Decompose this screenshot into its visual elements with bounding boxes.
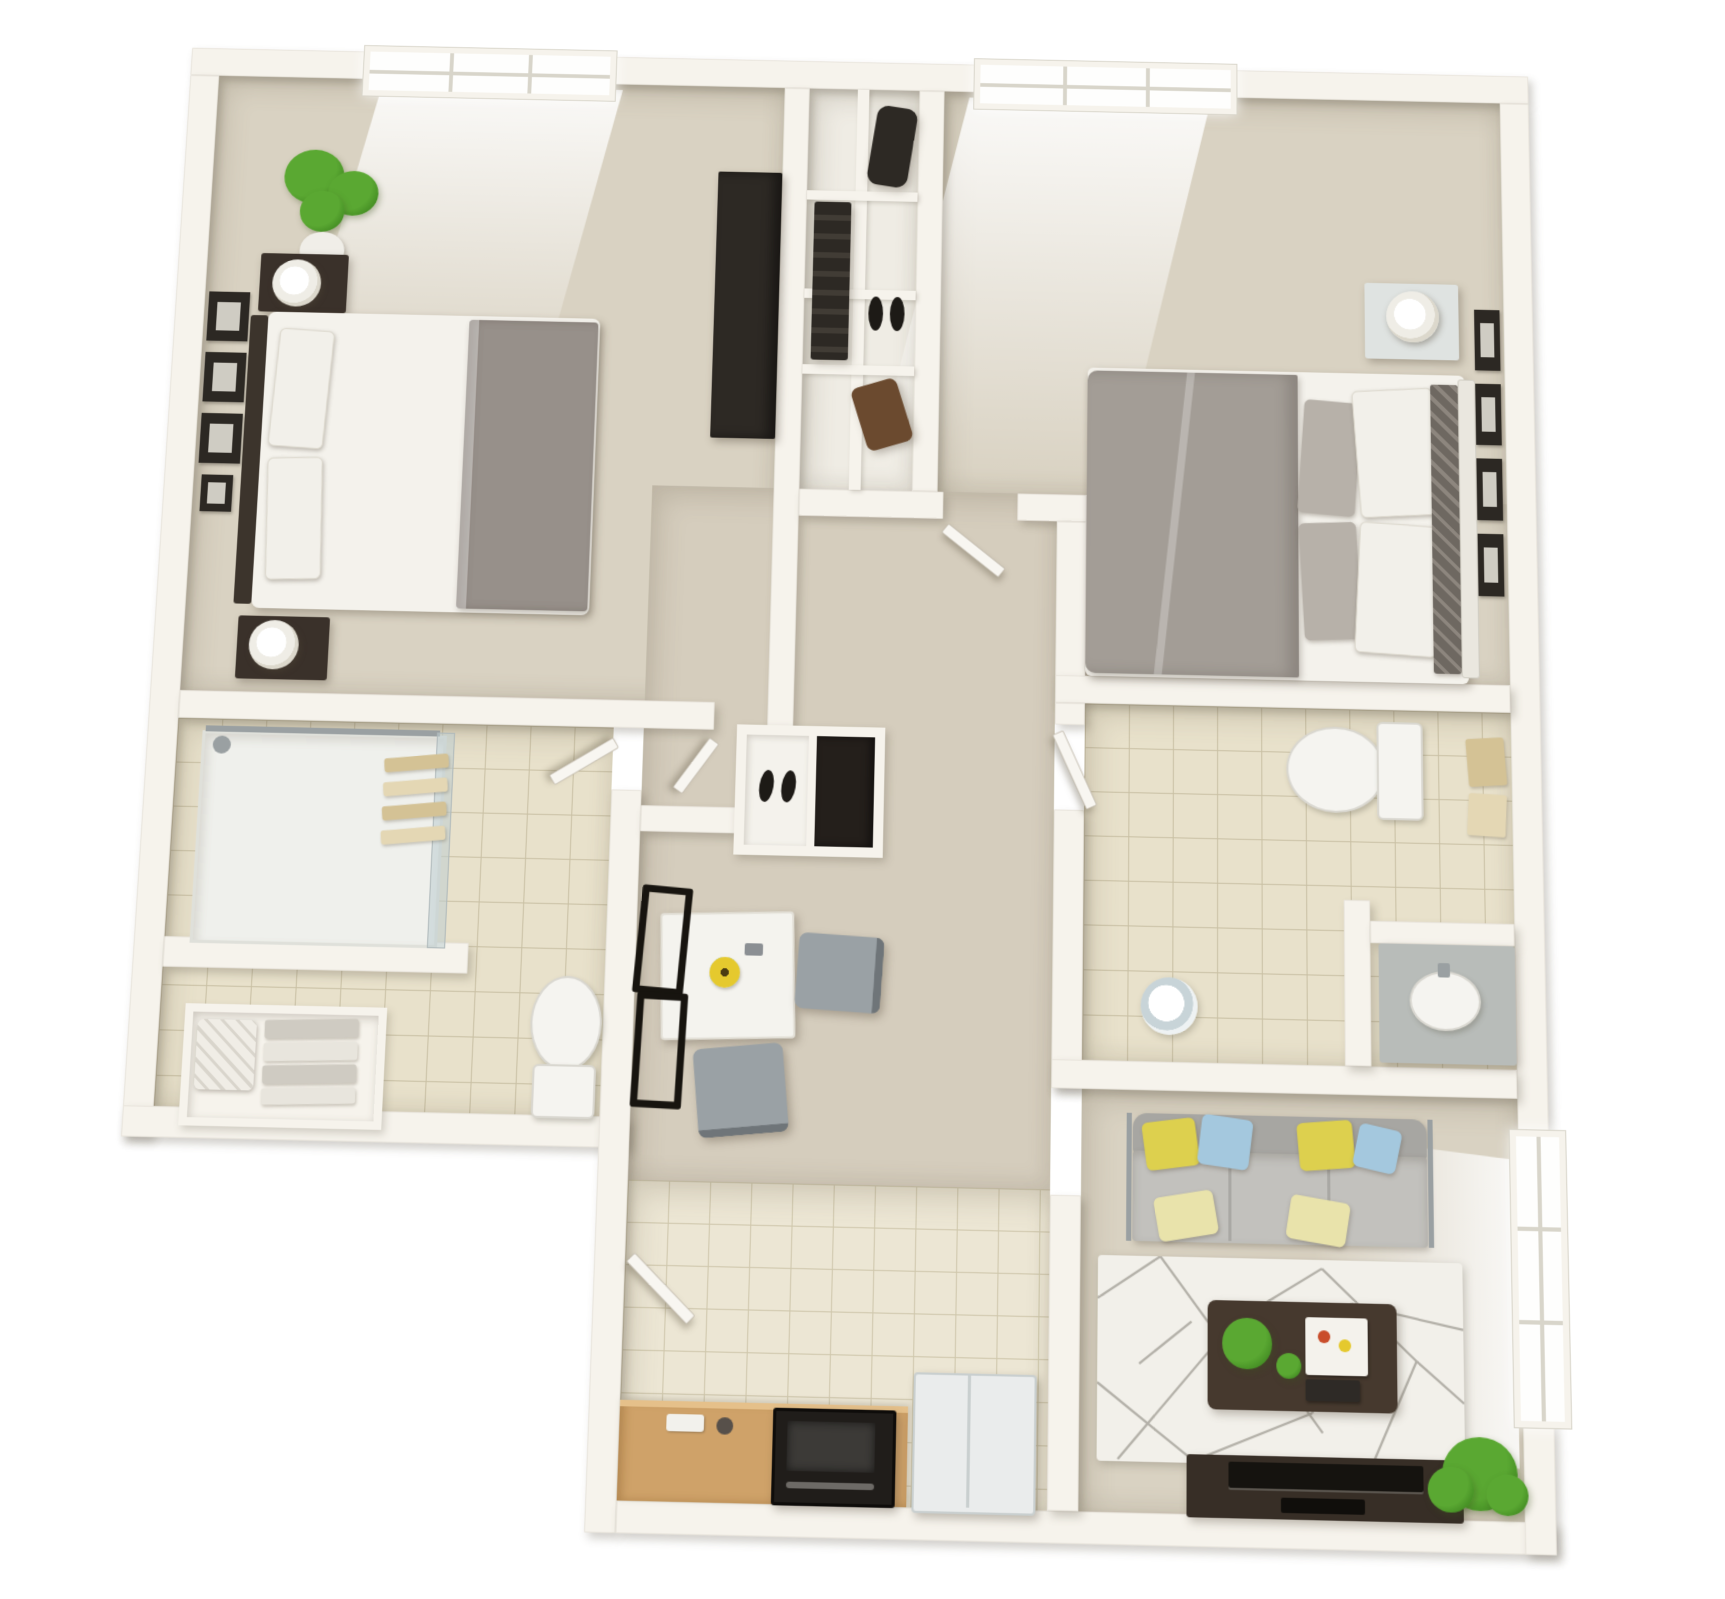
window-mullion xyxy=(1537,1137,1547,1422)
window-mullion xyxy=(369,70,610,79)
bed-1-pillow xyxy=(265,457,323,580)
shower-stool xyxy=(1140,977,1197,1036)
wall-art-frame xyxy=(199,474,233,511)
throw-pillow-blue xyxy=(1197,1114,1254,1171)
coffee-table-plant-small xyxy=(1276,1353,1301,1379)
television xyxy=(1228,1462,1423,1493)
folded-towel-stack xyxy=(261,1087,356,1105)
wall-living-left xyxy=(1047,1195,1081,1512)
shelf-cushion xyxy=(194,1019,257,1091)
bed-2-patterned-runner xyxy=(1430,385,1462,675)
dining-chair-right xyxy=(794,932,885,1014)
throw-pillow-yellow xyxy=(1141,1117,1200,1171)
wall-art-frame xyxy=(1474,310,1500,371)
books xyxy=(1306,1379,1360,1402)
refrigerator xyxy=(911,1372,1036,1516)
wardrobe xyxy=(710,172,782,439)
floor-plant-leaf xyxy=(1427,1466,1474,1513)
bed-2-pillow-gray xyxy=(1298,522,1363,641)
folded-towel-stack xyxy=(262,1064,357,1084)
wall-bathroom2-left-a xyxy=(1055,703,1085,726)
wall-art-frame xyxy=(1478,534,1505,597)
shoe-cabinet-right-compartment xyxy=(814,736,875,848)
folded-towel-stack xyxy=(263,1042,357,1062)
bed-1-blanket xyxy=(456,320,598,612)
tray-item xyxy=(1339,1339,1352,1352)
wall-bathroom2-halfwall xyxy=(1370,921,1514,947)
counter-dish xyxy=(666,1414,704,1432)
chair-frame xyxy=(630,991,689,1110)
wall-art-frame xyxy=(206,291,250,341)
cooktop-panel xyxy=(786,1421,875,1473)
floor-plant-leaf xyxy=(1486,1474,1529,1516)
table-item xyxy=(745,943,764,956)
faucet xyxy=(1438,963,1450,978)
living-room-window xyxy=(1510,1130,1572,1429)
window-mullion xyxy=(980,83,1230,92)
dining-chair-bottom xyxy=(693,1042,790,1139)
media-box xyxy=(1281,1498,1365,1515)
wall-hall-top-b xyxy=(1017,493,1086,522)
bed-2-duvet xyxy=(1085,370,1299,677)
throw-pillow-pale xyxy=(1153,1189,1219,1242)
wall-bathroom2-left-b xyxy=(1051,809,1084,1088)
towel xyxy=(1467,793,1507,838)
table-lamp xyxy=(1386,291,1439,343)
wall-art-frame xyxy=(199,413,243,464)
sofa-frame-left xyxy=(1126,1113,1132,1241)
coffee-table-plant xyxy=(1222,1317,1272,1370)
bed-2-pillow-white xyxy=(1354,521,1441,658)
wall-art-frame xyxy=(202,352,246,402)
bedroom-1-window xyxy=(362,46,616,101)
wall-art-frame xyxy=(1475,384,1502,446)
towel xyxy=(1465,737,1507,787)
toilet-tank xyxy=(531,1064,597,1119)
floor-plan-render xyxy=(0,0,1725,1599)
bed-2-pillow-gray xyxy=(1297,399,1361,517)
wall-hall-top-a xyxy=(799,489,944,519)
wall-bathroom2-divider xyxy=(1344,900,1372,1067)
toilet-tank xyxy=(1376,722,1423,821)
apartment-plan xyxy=(96,48,1557,1559)
wall-dining-stub xyxy=(640,805,736,833)
wall-art-frame xyxy=(1476,458,1503,520)
tray xyxy=(1305,1317,1368,1376)
folded-towel-stack xyxy=(265,1019,359,1039)
tray-item xyxy=(1318,1330,1331,1343)
throw-pillow-yellow xyxy=(1296,1120,1356,1172)
bed-2-pillow-white xyxy=(1351,388,1442,518)
hanging-clothes xyxy=(811,202,852,361)
chair-frame xyxy=(632,884,694,996)
shoe-cabinet-left-compartment xyxy=(744,734,809,846)
bedroom-2-window xyxy=(974,59,1236,114)
